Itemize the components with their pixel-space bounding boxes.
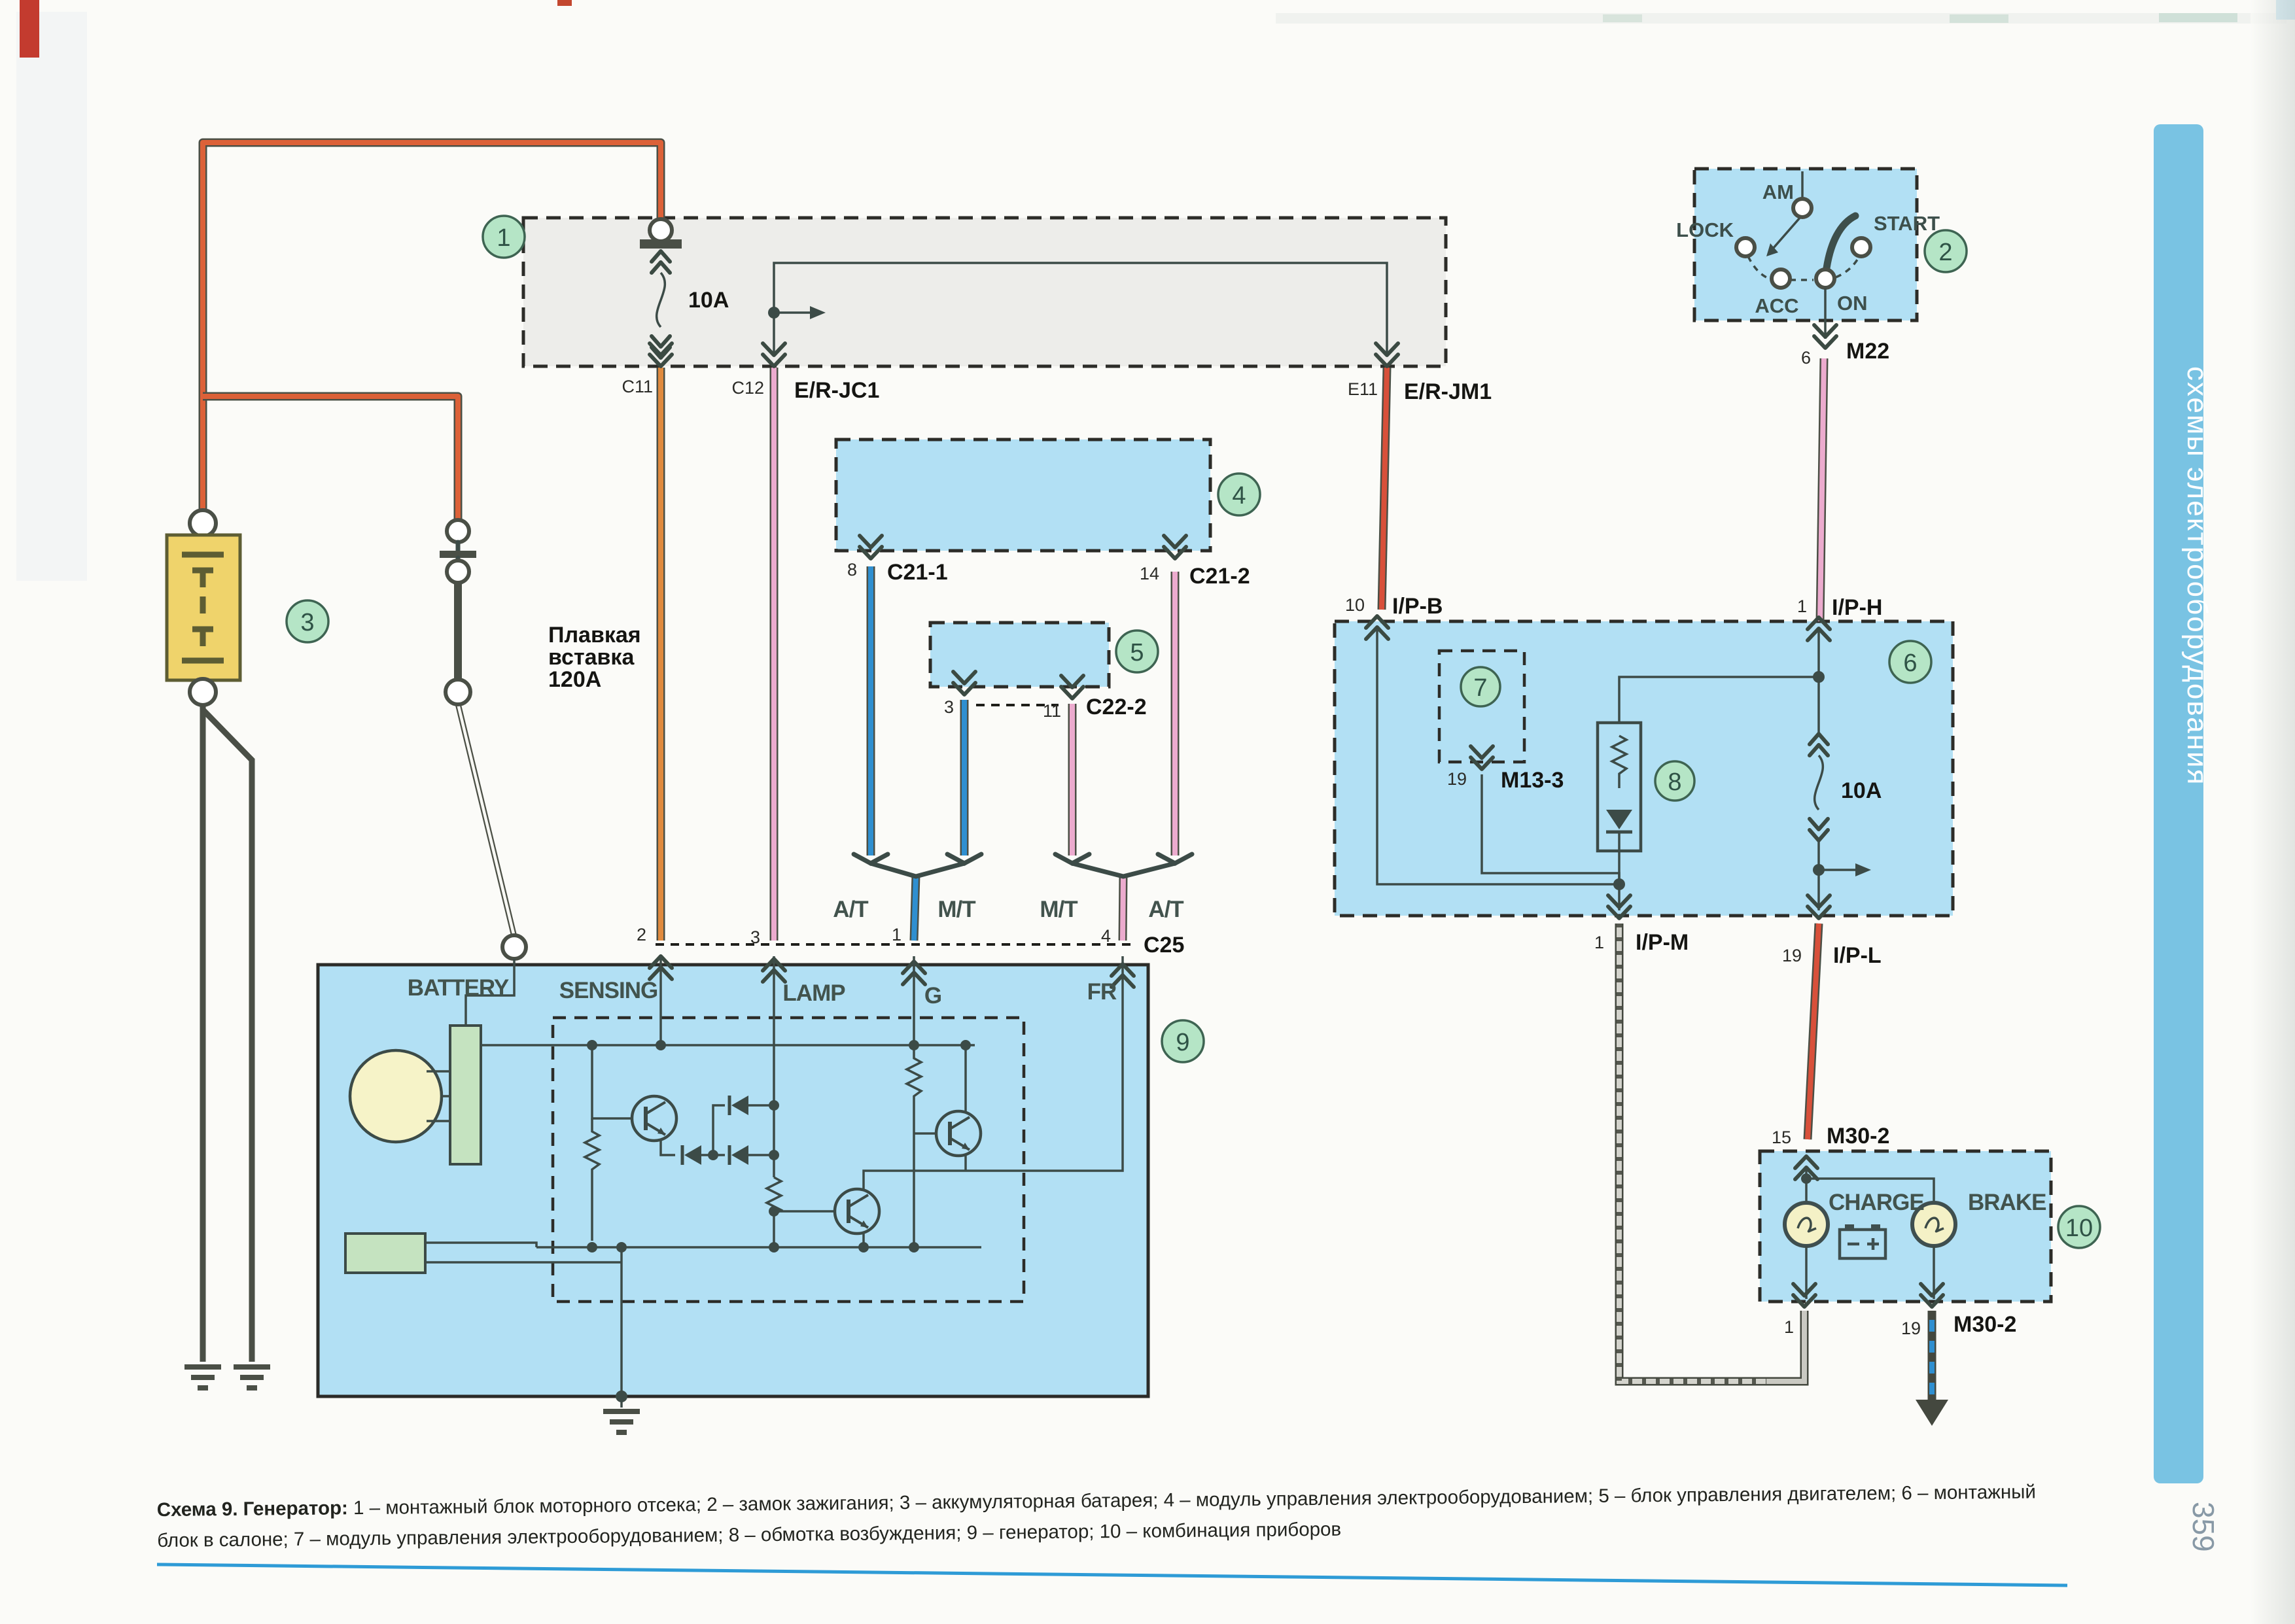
top-noise-band — [1276, 13, 2286, 24]
callout-7-label: 7 — [1473, 674, 1487, 702]
label-pin1m: 1 — [1594, 933, 1604, 952]
label-fusible-1: Плавкая — [548, 623, 641, 648]
fuse-holder — [640, 239, 682, 249]
label-sensing-terminal: SENSING — [559, 978, 658, 1003]
label-m22: M22 — [1846, 339, 1889, 364]
ground-icon — [184, 1367, 221, 1388]
label-ipm: I/P-M — [1636, 930, 1689, 955]
top-noise-tick — [1603, 14, 1642, 22]
label-c11: C11 — [622, 377, 653, 396]
label-at-left: A/T — [833, 897, 868, 922]
wire-merged-blue-g — [914, 875, 916, 941]
label-start: START — [1874, 212, 1940, 235]
sidebar: схемы электрооборудования 359 — [2154, 124, 2220, 1552]
label-mt-right: M/T — [1040, 897, 1077, 922]
electrical-module-outline — [836, 440, 1210, 551]
left-scan-band — [16, 12, 87, 581]
label-c25-pin4: 4 — [1101, 926, 1111, 946]
callout-9-label: 9 — [1176, 1029, 1189, 1056]
callout-3-label: 3 — [300, 609, 314, 636]
label-ipb: I/P-B — [1392, 594, 1443, 619]
label-m13-3: M13-3 — [1501, 768, 1564, 793]
fuse2-rating: 10A — [1841, 778, 1882, 803]
callout-10-label: 10 — [2065, 1215, 2093, 1242]
fuse1-rating: 10A — [688, 288, 729, 313]
sidebar-tab — [2154, 124, 2203, 1483]
label-pin14: 14 — [1140, 564, 1159, 583]
label-pin1h: 1 — [1797, 596, 1807, 616]
sidebar-label: схемы электрооборудования — [2181, 366, 2213, 786]
caption-rule — [157, 1564, 2067, 1585]
label-pin11: 11 — [1043, 701, 1061, 721]
wire-battery-to-fusible-outline — [203, 396, 458, 522]
label-c12: C12 — [731, 378, 764, 398]
callout-8-label: 8 — [1668, 769, 1681, 796]
label-lamp-terminal: LAMP — [782, 980, 845, 1006]
label-pin10: 10 — [1345, 595, 1365, 615]
position-start — [1852, 238, 1870, 256]
label-lock: LOCK — [1676, 218, 1734, 241]
rectifier-icon — [450, 1026, 481, 1164]
label-brake: BRAKE — [1968, 1190, 2046, 1215]
callout-4-label: 4 — [1232, 482, 1246, 510]
label-ipl: I/P-L — [1833, 943, 1882, 968]
position-am — [1793, 199, 1812, 217]
label-erjm1: E/R-JM1 — [1404, 379, 1492, 404]
label-m22-pin: 6 — [1801, 348, 1811, 368]
label-pin3: 3 — [944, 697, 954, 717]
wiring-diagram: 1 2 3 4 5 6 7 8 9 10 10A C11 C12 E/R-JC1… — [0, 0, 2295, 1624]
label-iph: I/P-H — [1832, 595, 1882, 620]
charge-lamp-icon — [1785, 1203, 1828, 1246]
label-c21-2: C21-2 — [1189, 564, 1250, 589]
fusible-link-symbol — [440, 520, 476, 704]
position-lock — [1736, 238, 1755, 256]
wire-merged-pink-fr — [1123, 875, 1123, 941]
transmission-merge-marks — [854, 854, 1192, 876]
label-c22-2: C22-2 — [1086, 695, 1147, 719]
position-on — [1816, 269, 1834, 288]
label-cluster-pin19: 19 — [1901, 1319, 1921, 1338]
brush-block-icon — [345, 1234, 425, 1273]
label-c21-1: C21-1 — [887, 560, 948, 585]
fuse-terminal — [650, 219, 672, 241]
label-mt-left: M/T — [937, 897, 975, 922]
wire-battery-ground-2 — [203, 710, 252, 1362]
battery-terminal — [502, 935, 526, 959]
label-fr-terminal: FR — [1087, 979, 1117, 1005]
callout-6-label: 6 — [1903, 649, 1917, 677]
top-noise-tick — [1950, 14, 2008, 23]
callout-2-label: 2 — [1938, 239, 1952, 266]
label-acc: ACC — [1755, 294, 1798, 317]
callout-5-label: 5 — [1130, 639, 1144, 666]
callout-1-label: 1 — [497, 224, 510, 252]
label-m30-bottom: M30-2 — [1953, 1312, 2016, 1337]
label-pin15: 15 — [1772, 1128, 1791, 1147]
label-charge: CHARGE — [1829, 1190, 1924, 1215]
red-top-tick — [557, 0, 572, 6]
ground-icon — [234, 1367, 270, 1388]
label-c25-pin3: 3 — [750, 927, 760, 947]
page-number: 359 — [2186, 1502, 2220, 1552]
label-c25-pin2: 2 — [637, 925, 646, 944]
arrow-down-icon — [1916, 1400, 1948, 1426]
label-am: AM — [1762, 181, 1794, 203]
label-c25-pin1: 1 — [892, 925, 902, 944]
label-e11: E11 — [1348, 379, 1378, 399]
top-noise-tick — [2159, 13, 2237, 22]
scanned-manual-page: 1 2 3 4 5 6 7 8 9 10 10A C11 C12 E/R-JC1… — [0, 0, 2295, 1624]
label-erjc1: E/R-JC1 — [794, 378, 879, 403]
label-fusible-2: вставка — [548, 645, 635, 670]
label-m30-top: M30-2 — [1827, 1124, 1889, 1149]
label-battery-terminal: BATTERY — [408, 975, 509, 1001]
label-pin8: 8 — [847, 560, 857, 579]
label-pin19l: 19 — [1782, 946, 1802, 965]
label-at-right: A/T — [1148, 897, 1183, 922]
wire-battery-to-fusible — [203, 396, 458, 522]
label-g-terminal: G — [924, 983, 941, 1009]
label-pin19m: 19 — [1447, 769, 1467, 789]
block-ignition-switch — [1694, 169, 1917, 320]
label-on: ON — [1837, 292, 1868, 315]
wire-ipm-striped — [1619, 924, 1766, 1381]
red-edge-mark — [20, 0, 39, 58]
caption-lead: Схема 9. Генератор: — [157, 1497, 348, 1521]
wire-fusible-battery-white — [458, 704, 514, 937]
label-cluster-pin1: 1 — [1784, 1317, 1794, 1337]
position-acc — [1772, 269, 1790, 288]
label-fusible-3: 120А — [548, 667, 601, 692]
stator-icon — [350, 1050, 442, 1142]
page-edge-shade — [2251, 0, 2295, 1624]
battery-symbol — [167, 510, 240, 705]
ignition-switch-outline — [1694, 169, 1917, 320]
ground-icon — [603, 1411, 640, 1432]
label-c25: C25 — [1144, 933, 1184, 958]
